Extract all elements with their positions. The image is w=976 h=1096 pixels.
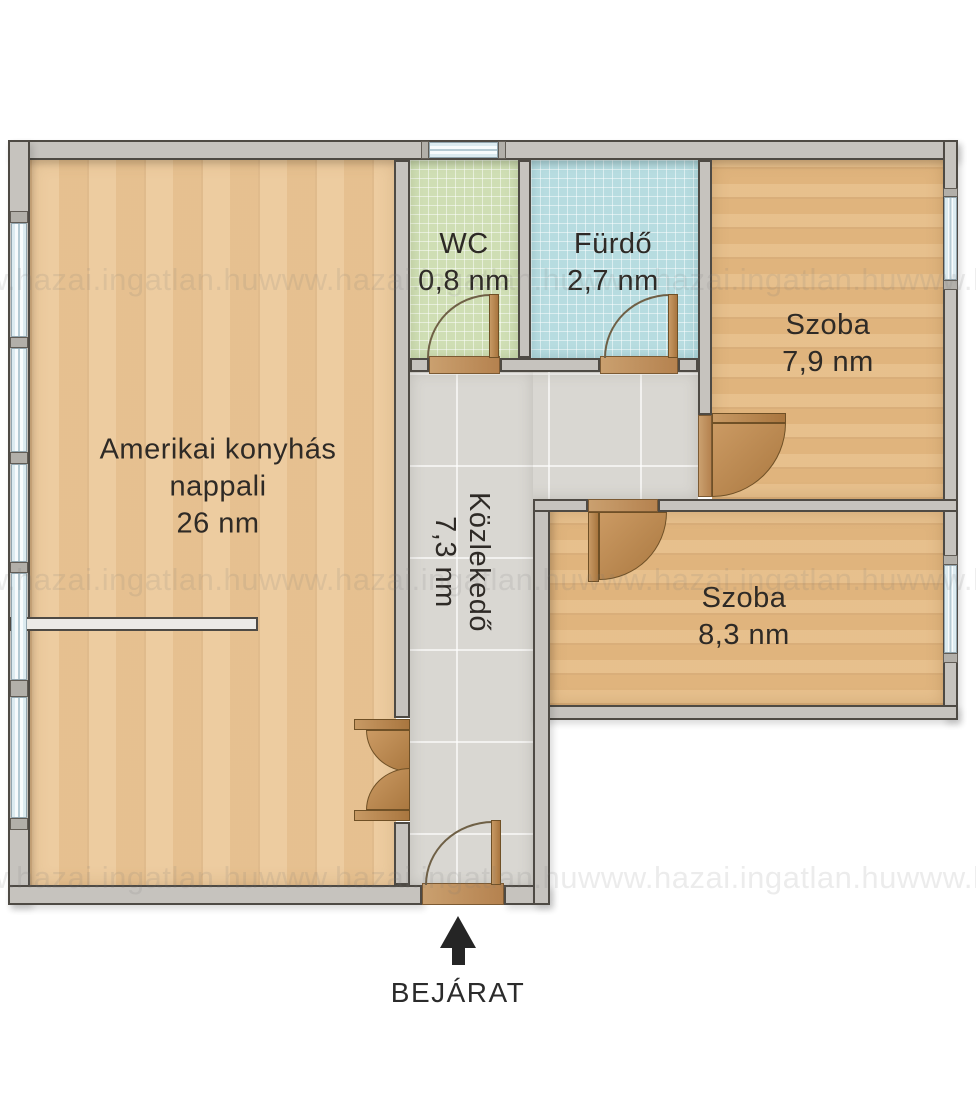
window-cap <box>10 680 28 697</box>
entrance-arrow-stem <box>452 948 465 965</box>
window-cap <box>10 211 28 223</box>
double-door-frame-bottom <box>354 810 410 821</box>
threshold-bathroom <box>600 356 678 374</box>
label-room83-area: 8,3 nm <box>698 617 790 654</box>
threshold-room83 <box>588 499 658 512</box>
wall-living-hall-upper <box>394 160 410 718</box>
label-hallway-area: 7,3 nm <box>428 492 462 632</box>
window-cap <box>943 188 958 197</box>
label-hallway-name: Közlekedő <box>462 492 496 632</box>
label-bathroom-name: Fürdő <box>567 226 659 263</box>
door-leaf-bathroom <box>668 294 678 358</box>
window-left-5 <box>11 697 27 818</box>
wall-wc-bottom-a <box>410 358 429 372</box>
window-cap <box>943 555 958 565</box>
label-bathroom-area: 2,7 nm <box>567 263 659 300</box>
door-leaf-room83 <box>588 512 599 582</box>
window-left-3 <box>11 464 27 562</box>
entrance-arrow-icon <box>440 916 476 965</box>
label-wc: WC 0,8 nm <box>418 226 510 300</box>
label-living-room-line1: Amerikai konyhás <box>100 432 337 469</box>
wall-living-partial-divider <box>10 617 258 631</box>
wall-bottom-left <box>8 885 422 905</box>
label-living-room: Amerikai konyhás nappali 26 nm <box>100 432 337 543</box>
label-living-room-area: 26 nm <box>100 506 337 543</box>
window-left-1 <box>11 223 27 337</box>
label-room79: Szoba 7,9 nm <box>782 307 874 381</box>
window-cap <box>943 653 958 663</box>
threshold-entrance <box>422 883 504 905</box>
window-cap <box>10 818 28 830</box>
window-cap <box>421 141 429 159</box>
window-left-2 <box>11 348 27 452</box>
wall-living-hall-lower <box>394 822 410 885</box>
door-leaf-room79 <box>712 413 786 423</box>
floor-plan: Amerikai konyhás nappali 26 nm WC 0,8 nm… <box>0 0 976 1096</box>
label-room83: Szoba 8,3 nm <box>698 580 790 654</box>
entrance-arrow-head <box>440 916 476 948</box>
threshold-wc <box>429 356 500 374</box>
door-leaf-wc <box>489 294 499 358</box>
window-right-room79 <box>944 197 957 280</box>
window-cap <box>10 337 28 348</box>
double-door-frame-top <box>354 719 410 730</box>
wall-bath-room79 <box>698 160 712 415</box>
wall-wc-bath-divider <box>518 160 531 358</box>
label-room79-name: Szoba <box>782 307 874 344</box>
window-cap <box>943 280 958 290</box>
window-cap <box>10 562 28 573</box>
entrance-label: BEJÁRAT <box>391 977 525 1009</box>
wall-room83-top-a <box>533 499 588 512</box>
label-hallway: Közlekedő 7,3 nm <box>428 492 496 632</box>
wall-bath-bottom-c <box>678 358 698 372</box>
window-left-4 <box>11 573 27 680</box>
wall-room83-top-b <box>658 499 958 512</box>
window-right-room83 <box>944 565 957 653</box>
window-cap <box>10 452 28 464</box>
wall-hallway-right <box>533 499 550 905</box>
window-top-wc <box>429 142 498 158</box>
label-living-room-line2: nappali <box>100 469 337 506</box>
label-wc-name: WC <box>418 226 510 263</box>
door-leaf-entrance <box>491 820 501 885</box>
window-cap <box>498 141 506 159</box>
threshold-room79 <box>698 415 712 497</box>
wall-wc-bottom-b <box>500 358 600 372</box>
label-bathroom: Fürdő 2,7 nm <box>567 226 659 300</box>
label-room79-area: 7,9 nm <box>782 344 874 381</box>
label-room83-name: Szoba <box>698 580 790 617</box>
label-wc-area: 0,8 nm <box>418 263 510 300</box>
wall-room83-bottom <box>533 705 958 720</box>
